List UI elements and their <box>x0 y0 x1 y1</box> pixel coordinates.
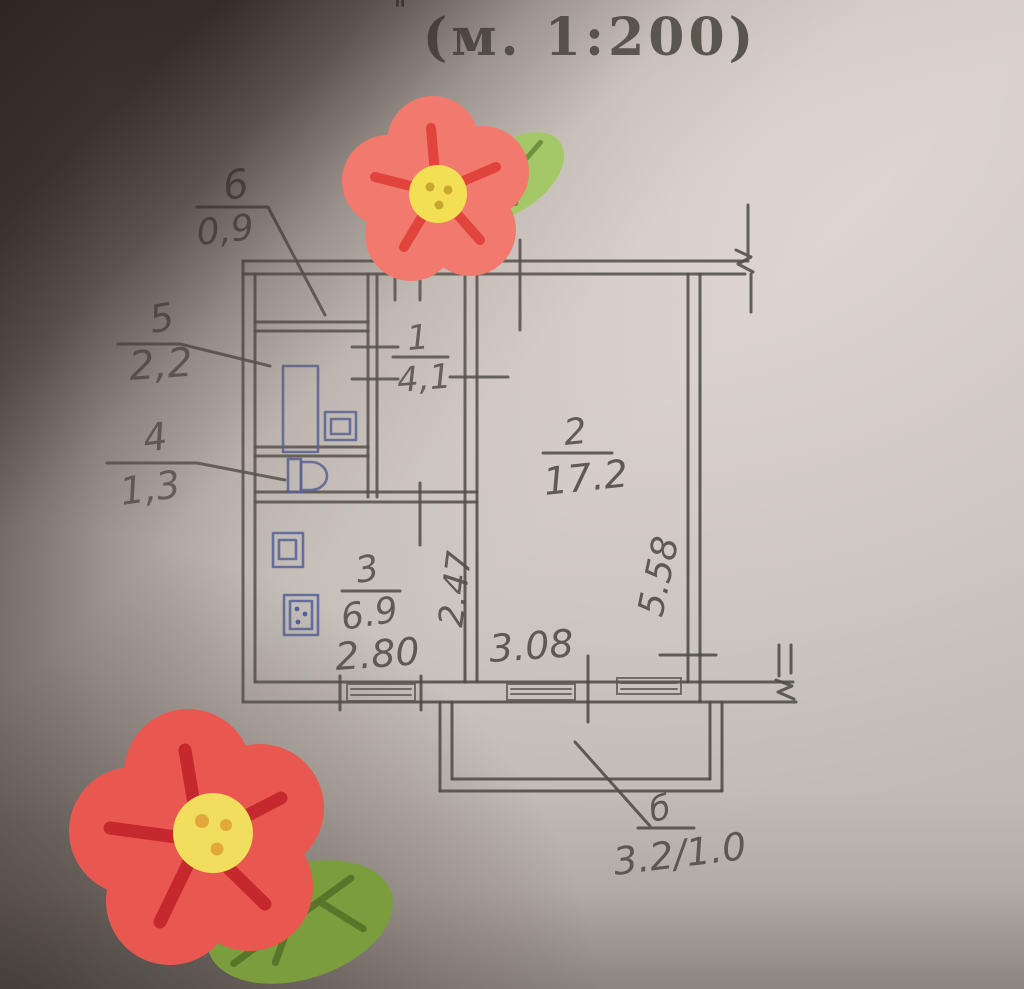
flower-sticker-bottom <box>69 709 409 989</box>
flower-icon <box>342 96 529 281</box>
floorplan-photo: (м. 1:200) " <box>0 0 1024 989</box>
flower-icon <box>69 709 324 965</box>
flower-sticker-top <box>342 96 580 281</box>
sticker-layer <box>0 0 1024 989</box>
